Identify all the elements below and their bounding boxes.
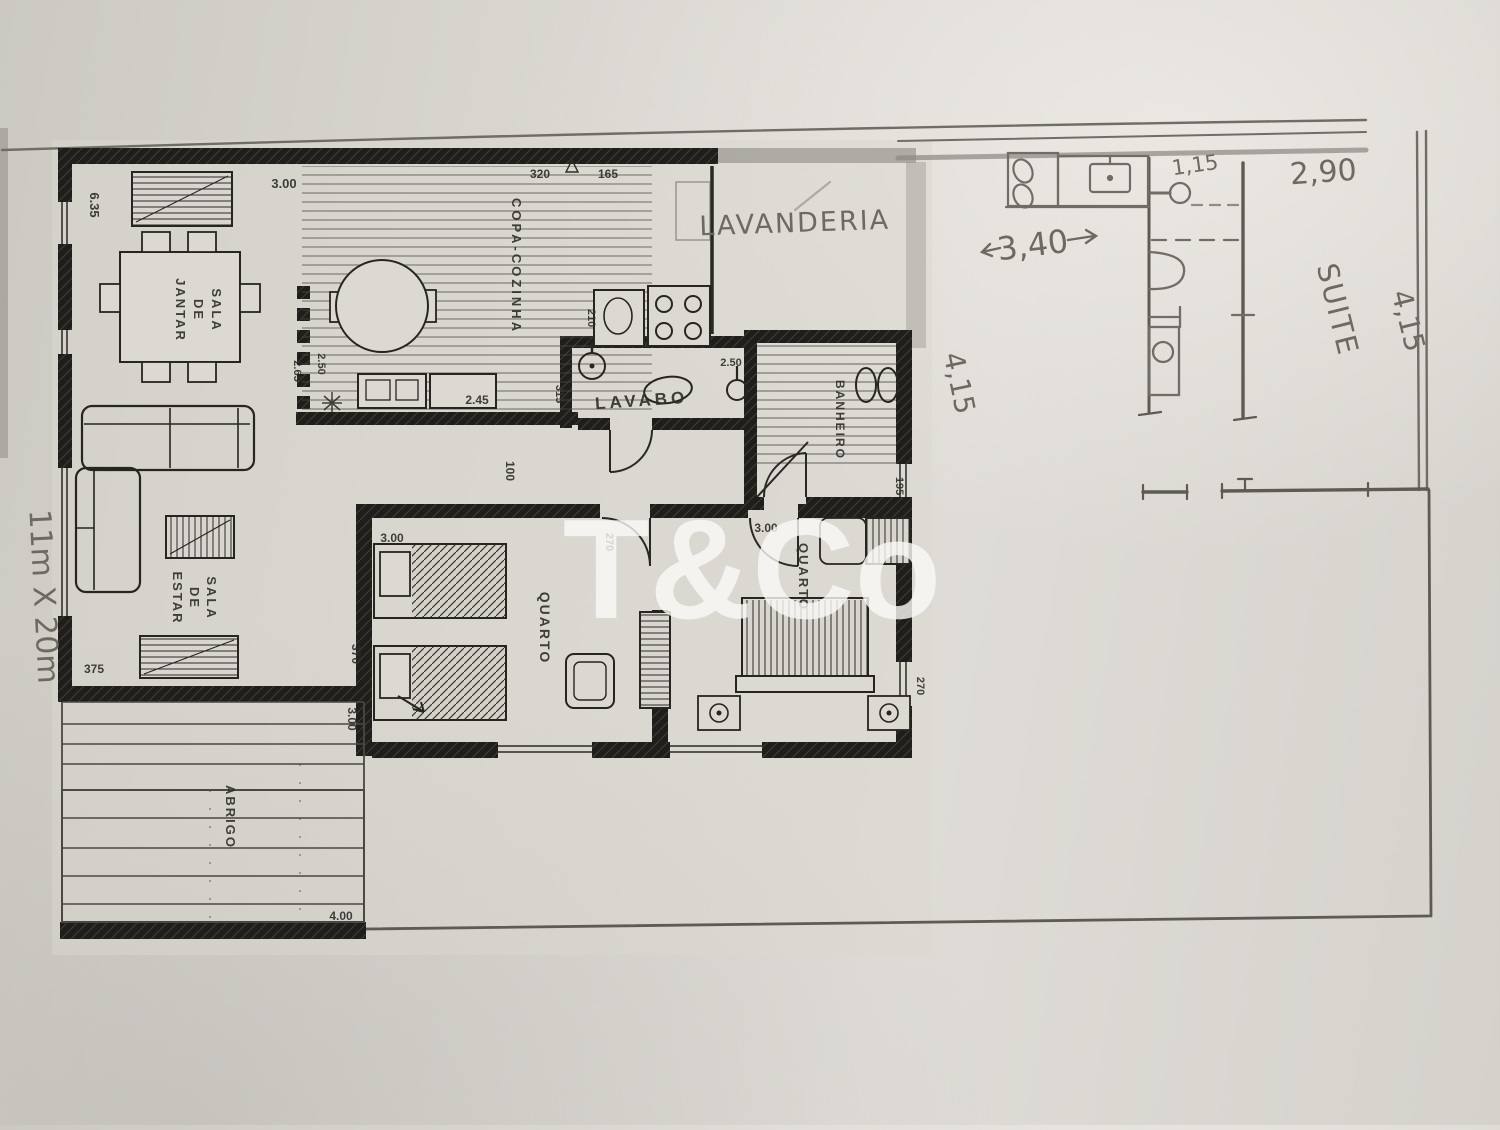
pencil-extension-walls	[1139, 158, 1428, 499]
room-label-sala-estar: SALA	[204, 576, 219, 619]
pillow	[380, 552, 410, 596]
dim-left-wall: 6.35	[87, 192, 102, 217]
dim-kitchen-door-b: 2.65	[291, 360, 303, 381]
hw-dim-3-40: 3,40	[995, 222, 1070, 268]
watermark-logo: T&Co	[563, 490, 942, 649]
photographed-floor-plan: 6.35 3.00 320 165 2.50 2.65 2.45 315 210…	[0, 0, 1500, 1125]
hw-dim-1-15: 1,15	[1170, 150, 1220, 180]
room-label-sala-jantar: JANTAR	[173, 278, 188, 342]
footboard	[736, 676, 874, 692]
floor-plan-sketch: 6.35 3.00 320 165 2.50 2.65 2.45 315 210…	[0, 0, 1500, 1125]
dim-sink-run: 210	[585, 309, 597, 327]
dim-jantar-width: 3.00	[271, 176, 296, 191]
room-label-sala-estar: DE	[187, 587, 202, 609]
dim-quarto-right-window: 270	[914, 677, 926, 695]
dim-lavabo-depth: 315	[553, 385, 565, 403]
room-label-banheiro: BANHEIRO	[833, 380, 847, 460]
dim-quarto-left-width: 3.00	[380, 531, 404, 545]
dim-kitchen-top-a: 320	[530, 167, 550, 181]
room-label-copa-cozinha: COPA-COZINHA	[509, 198, 524, 334]
hw-label-suite: SUITE	[1310, 260, 1366, 360]
room-label-quarto-left: QUARTO	[537, 592, 553, 664]
dim-estar: 375	[84, 662, 104, 676]
dim-abrigo-width: 4.00	[329, 909, 353, 923]
dim-hall: 100	[503, 461, 517, 481]
room-label-sala-jantar: SALA	[209, 288, 224, 331]
dim-kitchen-door-a: 2.50	[315, 353, 327, 374]
hw-dim-4-15-left: 4,15	[937, 349, 982, 417]
bathroom-floor-hatch	[757, 345, 896, 469]
hw-dim-4-15-right: 4,15	[1385, 286, 1432, 354]
toilet-icon	[1149, 252, 1184, 289]
room-label-sala-jantar: DE	[191, 299, 206, 321]
dim-quarto-low: 3.00	[345, 707, 359, 731]
pencil-suite-bath-fixtures	[1149, 183, 1242, 395]
dim-kitchen-top-b: 165	[598, 167, 618, 181]
dim-shower: 2.50	[720, 357, 741, 369]
dim-quarto-left-depth: 370	[349, 644, 363, 664]
pillow	[380, 654, 410, 698]
hw-dim-2-90: 2,90	[1289, 153, 1358, 193]
room-label-sala-estar: ESTAR	[170, 571, 185, 624]
kitchen-table	[336, 260, 428, 352]
room-label-abrigo: ABRIGO	[223, 785, 238, 849]
kitchen-counter	[358, 374, 426, 408]
dim-counter: 2.45	[465, 393, 489, 407]
